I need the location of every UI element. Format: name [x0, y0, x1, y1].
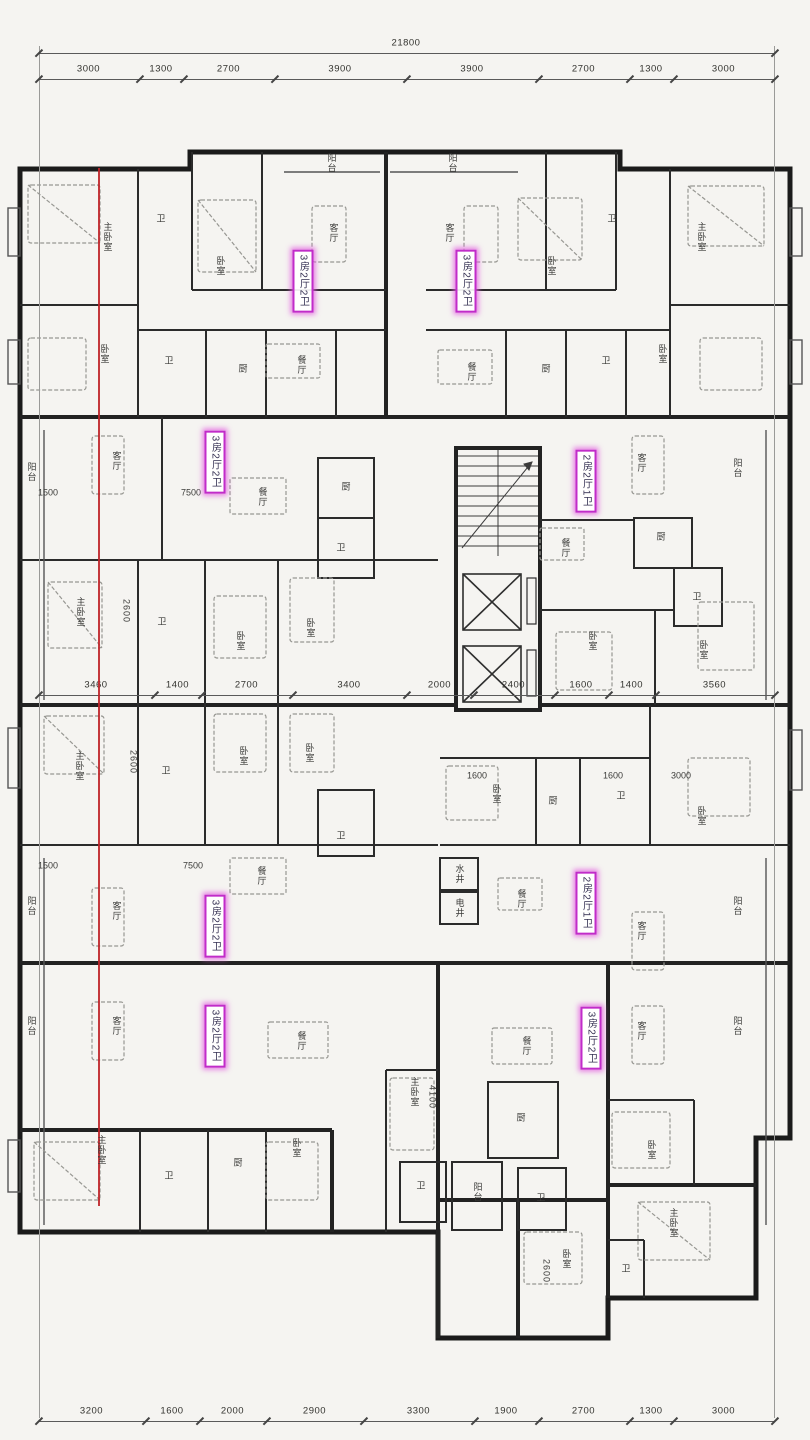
room-label: 卫: [621, 1265, 630, 1274]
dimension-value: 2900: [303, 1406, 326, 1417]
right-extension-line: [774, 46, 775, 1418]
room-label: 卫: [536, 1194, 545, 1203]
room-label: 卫: [601, 357, 610, 366]
room-label: 餐厅: [522, 1036, 531, 1056]
dimension-value: 2600: [542, 1259, 551, 1283]
room-label: 卧室: [647, 1140, 656, 1160]
unit-type-label: 3房2厅2卫: [205, 1005, 226, 1068]
room-label: 阳台: [733, 896, 742, 916]
floor-plan-sheet: 2180030001300270039003900270013003000346…: [0, 0, 810, 1440]
dimension-value: 2600: [122, 599, 131, 623]
partition-walls: [20, 152, 790, 1298]
dimension-value: 1500: [38, 489, 58, 498]
left-extension-line: [39, 46, 40, 1418]
room-label: 卧室: [658, 344, 667, 364]
dimension-value: 4100: [428, 1085, 437, 1109]
room-label: 客厅: [329, 223, 338, 243]
room-label: 卫: [164, 1172, 173, 1181]
room-label: 阳台: [733, 458, 742, 478]
room-label: 厨: [656, 533, 665, 542]
dimension-value: 3300: [407, 1406, 430, 1417]
room-label: 主卧室: [76, 597, 85, 627]
dimension-value: 3000: [77, 64, 100, 75]
room-label: 卧室: [100, 344, 109, 364]
room-label: 卧室: [588, 631, 597, 651]
room-label: 客厅: [445, 223, 454, 243]
room-label: 卫: [616, 792, 625, 801]
dimension-value: 1300: [149, 64, 172, 75]
room-label: 主卧室: [97, 1135, 106, 1165]
room-label: 阳台: [327, 153, 336, 173]
room-label: 卫: [161, 767, 170, 776]
room-label: 卧室: [492, 784, 501, 804]
room-label: 卧室: [306, 618, 315, 638]
room-label: 餐厅: [257, 866, 266, 886]
dimension-value: 2700: [572, 64, 595, 75]
dimension-value: 1500: [38, 862, 58, 871]
dimension-value: 3900: [328, 64, 351, 75]
room-label: 厨: [516, 1114, 525, 1123]
room-label: 主卧室: [75, 751, 84, 781]
room-label: 卫: [157, 618, 166, 627]
room-label: 主卧室: [697, 222, 706, 252]
dimension-value: 1300: [639, 64, 662, 75]
dimension-line: [38, 53, 774, 54]
room-label: 电井: [455, 898, 464, 918]
dimension-value: 1600: [160, 1406, 183, 1417]
room-label: 餐厅: [297, 1031, 306, 1051]
room-label: 厨: [341, 483, 350, 492]
unit-type-label: 3房2厅2卫: [205, 895, 226, 958]
dimension-value: 3560: [703, 680, 726, 691]
dimension-value: 2700: [572, 1406, 595, 1417]
unit-type-label: 3房2厅2卫: [456, 250, 477, 313]
dimension-value: 3000: [671, 772, 691, 781]
staircase: [458, 450, 538, 556]
unit-type-label: 2房2厅1卫: [576, 872, 597, 935]
unit-type-label: 3房2厅2卫: [205, 431, 226, 494]
room-label: 卫: [336, 544, 345, 553]
room-label: 厨: [541, 365, 550, 374]
room-label: 卧室: [292, 1138, 301, 1158]
room-label: 餐厅: [561, 538, 570, 558]
dimension-value: 1600: [467, 772, 487, 781]
unit-type-label: 3房2厅2卫: [581, 1007, 602, 1070]
room-label: 卫: [336, 832, 345, 841]
dimension-value: 2000: [428, 680, 451, 691]
room-label: 卧室: [236, 631, 245, 651]
room-label: 卫: [692, 593, 701, 602]
room-label: 主卧室: [410, 1077, 419, 1107]
dimension-value: 1600: [569, 680, 592, 691]
room-label: 厨: [233, 1159, 242, 1168]
room-label: 客厅: [112, 451, 121, 471]
room-label: 卧室: [697, 806, 706, 826]
room-label: 厨: [238, 365, 247, 374]
room-label: 客厅: [112, 1016, 121, 1036]
room-label: 阳台: [27, 896, 36, 916]
dimension-value: 2400: [502, 680, 525, 691]
dimension-value: 1600: [603, 772, 623, 781]
dimension-value: 7500: [183, 862, 203, 871]
room-label: 阳台: [448, 153, 457, 173]
room-label: 卧室: [305, 743, 314, 763]
room-label: 卧室: [699, 640, 708, 660]
dimension-value: 2600: [129, 750, 138, 774]
dimension-value: 2700: [217, 64, 240, 75]
dimension-value: 1900: [494, 1406, 517, 1417]
room-label: 卫: [156, 215, 165, 224]
room-label: 卧室: [562, 1249, 571, 1269]
dimension-value: 1400: [166, 680, 189, 691]
dimension-line: [38, 1421, 774, 1422]
room-label: 卫: [416, 1182, 425, 1191]
room-label: 卧室: [239, 746, 248, 766]
dimension-value: 3000: [712, 1406, 735, 1417]
room-label: 卫: [607, 215, 616, 224]
balcony-rails: [8, 172, 802, 1225]
dimension-value: 3460: [84, 680, 107, 691]
dimension-value: 1300: [639, 1406, 662, 1417]
interior-walls: [20, 152, 790, 1338]
room-label: 厨: [548, 797, 557, 806]
room-label: 客厅: [112, 901, 121, 921]
room-label: 阳台: [733, 1016, 742, 1036]
room-label: 主卧室: [103, 222, 112, 252]
room-label: 餐厅: [258, 487, 267, 507]
room-label: 客厅: [637, 453, 646, 473]
room-label: 卧室: [216, 256, 225, 276]
dimension-value: 3400: [337, 680, 360, 691]
room-label: 餐厅: [467, 362, 476, 382]
room-label: 主卧室: [669, 1208, 678, 1238]
dimension-value: 2000: [221, 1406, 244, 1417]
outer-walls: [20, 152, 790, 1338]
dimension-value: 21800: [392, 38, 421, 49]
room-label: 阳台: [473, 1182, 482, 1202]
unit-type-label: 3房2厅2卫: [293, 250, 314, 313]
room-label: 餐厅: [517, 889, 526, 909]
dimension-value: 3900: [460, 64, 483, 75]
dimension-value: 1400: [620, 680, 643, 691]
dimension-value: 3000: [712, 64, 735, 75]
dimension-value: 3200: [80, 1406, 103, 1417]
section-reference-line: [98, 168, 100, 1206]
floorplan-drawing: [0, 0, 810, 1440]
room-label: 客厅: [637, 921, 646, 941]
dimension-value: 2700: [235, 680, 258, 691]
dimension-value: 7500: [181, 489, 201, 498]
room-label: 餐厅: [297, 355, 306, 375]
room-label: 卫: [164, 357, 173, 366]
room-label: 阳台: [27, 1016, 36, 1036]
room-label: 水井: [455, 864, 464, 884]
room-label: 阳台: [27, 462, 36, 482]
room-label: 卧室: [547, 256, 556, 276]
room-label: 客厅: [637, 1021, 646, 1041]
unit-type-label: 2房2厅1卫: [576, 450, 597, 513]
